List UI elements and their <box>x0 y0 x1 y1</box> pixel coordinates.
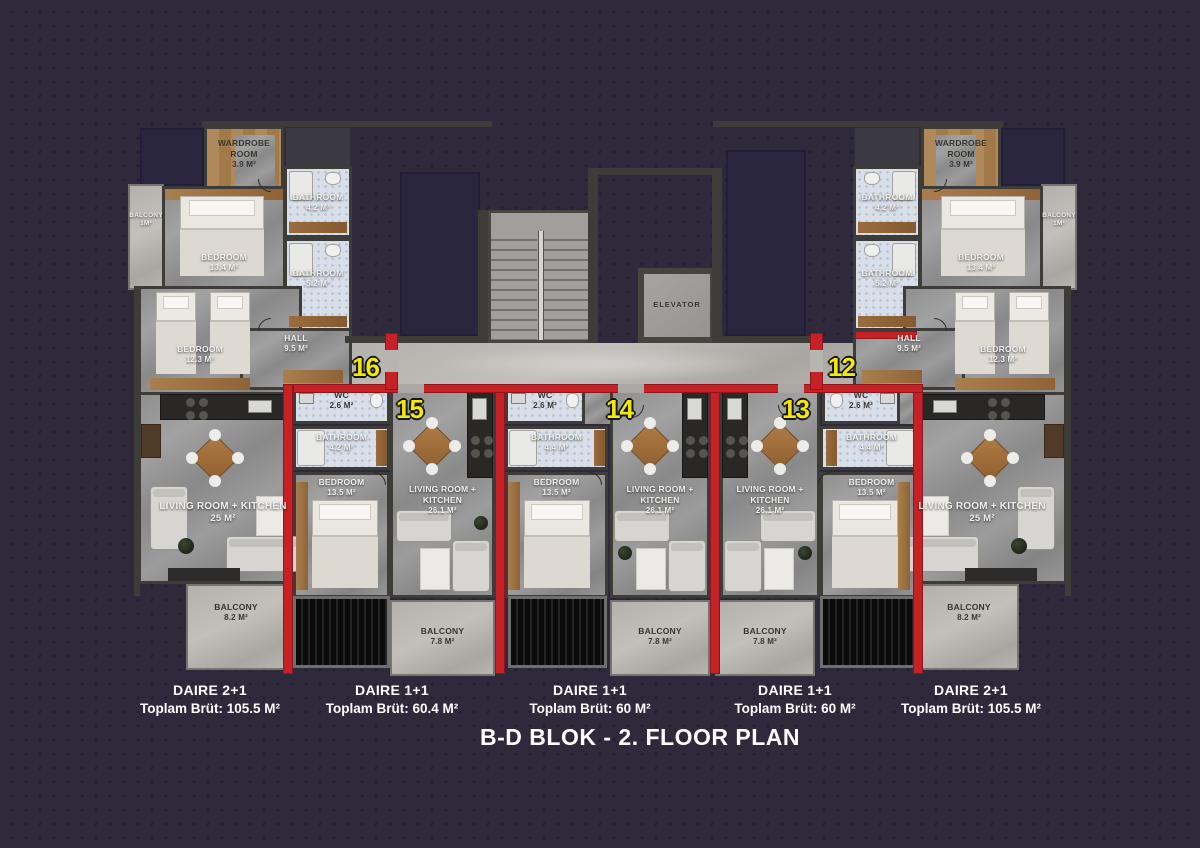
entry-door-gap-14 <box>618 384 644 393</box>
coffee-table <box>636 548 666 590</box>
entry-door-gap-15 <box>398 384 424 393</box>
bedroom134-left-label: BEDROOM 13.4 M² <box>162 252 286 273</box>
void-right-of-elevator <box>726 150 806 336</box>
wardrobe-right-label: WARDROBE ROOM 3.9 M² <box>921 138 1001 170</box>
balcony82-left <box>186 584 286 670</box>
stair-steps-right <box>543 231 589 340</box>
red-wall <box>913 384 923 674</box>
outer-wall-right <box>1065 286 1071 596</box>
wall-block-right <box>853 126 921 170</box>
plant-icon <box>1011 538 1027 554</box>
kitchen-sink-icon <box>727 398 742 420</box>
vanity-icon <box>289 316 347 327</box>
kitchen-sink-icon <box>933 400 957 413</box>
bedroom134-right-label: BEDROOM 13.4 M² <box>919 252 1043 273</box>
elevator-label: ELEVATOR <box>640 300 714 310</box>
stove-icon <box>186 398 195 407</box>
living13-label: LIVING ROOM + KITCHEN 26.1 M² <box>718 484 822 516</box>
unit-number-16: 16 <box>352 352 379 383</box>
balcony82-right <box>919 584 1019 670</box>
bath15-label: BATHROOM 4.2 M² <box>293 432 390 453</box>
kitchen-sink-icon <box>472 398 487 420</box>
hatch-area <box>293 596 390 668</box>
dining-chairs <box>984 452 996 464</box>
dining-chairs <box>774 440 786 452</box>
entry-nook-13 <box>900 388 913 424</box>
kitchen-sink-icon <box>687 398 702 420</box>
living-right-label: LIVING ROOM + KITCHEN 25 M² <box>909 500 1055 525</box>
outer-wall-left <box>134 286 140 596</box>
caption-daire-12: DAIRE 2+1 Toplam Brüt: 105.5 M² <box>861 682 1081 716</box>
red-wall <box>495 384 505 674</box>
vanity-icon <box>289 222 347 233</box>
hall-right-label: HALL 9.5 M² <box>853 333 965 354</box>
wc13-label: WC 2.6 M² <box>822 390 900 411</box>
armchair <box>452 540 490 592</box>
elevator-shaft-wall-top <box>588 168 722 175</box>
caption-daire-14: DAIRE 1+1 Toplam Brüt: 60 M² <box>480 682 700 716</box>
unit-number-15: 15 <box>396 394 423 425</box>
bedroom14-label: BEDROOM 13.5 M² <box>505 477 608 498</box>
wc14-label: WC 2.6 M² <box>505 390 585 411</box>
bedroom15-label: BEDROOM 13.5 M² <box>293 477 390 498</box>
dining-chairs <box>426 440 438 452</box>
bathroom42-left-label: BATHROOM 4.2 M² <box>284 192 352 213</box>
toilet-icon <box>325 172 341 185</box>
staircase <box>488 210 592 343</box>
hatch-area <box>820 596 919 668</box>
living14-label: LIVING ROOM + KITCHEN 26.1 M² <box>608 484 712 516</box>
double-bed <box>832 500 898 588</box>
hall-bench <box>283 370 343 383</box>
stove-icon <box>988 398 997 407</box>
elevator-shaft-wall-left <box>588 168 598 343</box>
hall-bench <box>862 370 922 383</box>
bedroom13-label: BEDROOM 13.5 M² <box>820 477 923 498</box>
building-mass-top-right <box>1001 128 1065 186</box>
double-bed <box>524 500 590 588</box>
dining-chairs <box>644 440 656 452</box>
unit-number-13: 13 <box>782 394 809 425</box>
balcony-1m-right <box>1041 184 1077 290</box>
entry-door-gap-16 <box>385 350 398 372</box>
plant-icon <box>474 516 488 530</box>
outer-wall-top-right <box>713 121 1003 127</box>
wc15-label: WC 2.6 M² <box>293 390 390 411</box>
corridor-highlight <box>430 347 770 381</box>
wall-block-left <box>284 126 352 170</box>
stove-icon <box>471 436 480 445</box>
red-wall <box>283 384 293 674</box>
coffee-table <box>420 548 450 590</box>
balcony-1m-right-label: BALCONY 1M² <box>1037 212 1081 229</box>
stove-icon <box>726 436 735 445</box>
elevator-shaft-wall-right <box>712 168 722 343</box>
corridor-top-wall-right <box>722 336 814 343</box>
balcony82-right-label: BALCONY 8.2 M² <box>919 602 1019 623</box>
stair-steps-left <box>491 231 537 340</box>
toilet-icon <box>325 244 341 257</box>
balcony-1m-left-label: BALCONY 1M² <box>124 212 168 229</box>
balcony-1m-left <box>128 184 164 290</box>
outer-wall-top-left <box>202 121 492 127</box>
entry-door-gap-12 <box>810 350 823 372</box>
vanity-icon <box>858 222 916 233</box>
living15-label: LIVING ROOM + KITCHEN 26.1 M² <box>390 484 495 516</box>
wardrobe-bench <box>150 378 250 390</box>
void-left-of-stairs <box>400 172 480 336</box>
armchair <box>724 540 762 592</box>
toilet-icon <box>864 172 880 185</box>
tv-console <box>965 568 1037 581</box>
double-bed <box>312 500 378 588</box>
building-mass-top-left <box>140 128 204 186</box>
unit-number-14: 14 <box>606 394 633 425</box>
plant-icon <box>618 546 632 560</box>
page-title: B-D BLOK - 2. FLOOR PLAN <box>430 724 850 751</box>
tv-console <box>168 568 240 581</box>
hall-left-label: HALL 9.5 M² <box>240 333 352 354</box>
bathroom52-left-label: BATHROOM 5.2 M² <box>284 268 352 289</box>
stove-icon <box>686 436 695 445</box>
wardrobe-bench <box>955 378 1055 390</box>
kitchen-sink-icon <box>248 400 272 413</box>
fridge-icon <box>141 424 161 458</box>
stair-divider <box>538 231 544 340</box>
toilet-icon <box>864 244 880 257</box>
entry-door-gap-13 <box>778 384 804 393</box>
caption-daire-15: DAIRE 1+1 Toplam Brüt: 60.4 M² <box>282 682 502 716</box>
bathroom52-right-label: BATHROOM 5.2 M² <box>853 268 921 289</box>
plant-icon <box>798 546 812 560</box>
bath14-label: BATHROOM 4.4 M² <box>505 432 608 453</box>
balcony82-left-label: BALCONY 8.2 M² <box>186 602 286 623</box>
living-left-label: LIVING ROOM + KITCHEN 25 M² <box>150 500 296 525</box>
floor-plan: ELEVATOR WARDROBE ROOM 3.9 M² BATHROOM 4… <box>0 0 1200 848</box>
bath13-label: BATHROOM 4.4 M² <box>820 432 923 453</box>
vanity-icon <box>858 316 916 327</box>
corridor-top-wall-left <box>345 336 488 343</box>
balcony13-label: BALCONY 7.8 M² <box>715 626 815 647</box>
fridge-icon <box>1044 424 1064 458</box>
wardrobe-left-label: WARDROBE ROOM 3.9 M² <box>204 138 284 170</box>
plant-icon <box>178 538 194 554</box>
unit-number-12: 12 <box>828 352 855 383</box>
balcony15-label: BALCONY 7.8 M² <box>390 626 495 647</box>
hatch-area <box>508 596 607 668</box>
bathroom42-right-label: BATHROOM 4.2 M² <box>853 192 921 213</box>
armchair <box>668 540 706 592</box>
coffee-table <box>764 548 794 590</box>
stair-side-wall <box>478 210 488 343</box>
balcony14-label: BALCONY 7.8 M² <box>610 626 710 647</box>
dining-chairs <box>209 452 221 464</box>
